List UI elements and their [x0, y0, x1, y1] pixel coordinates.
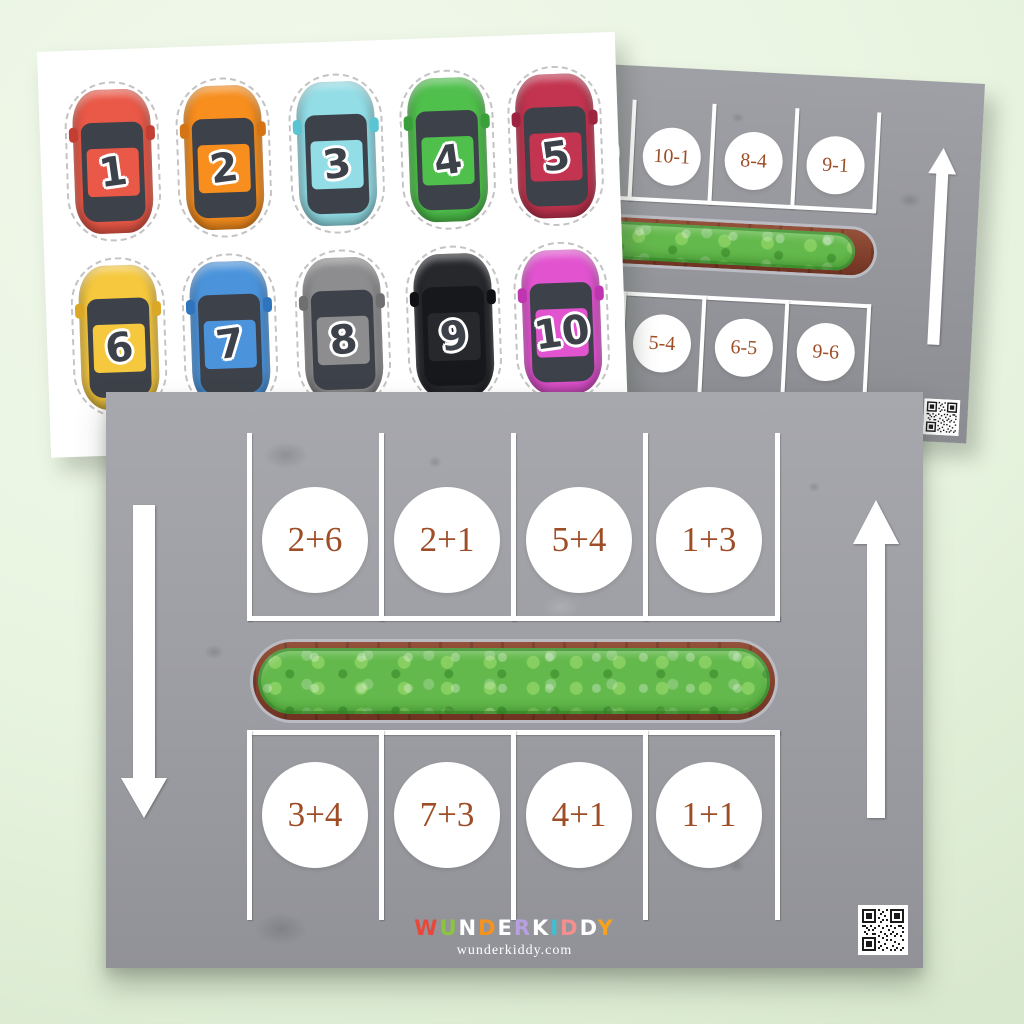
car-roof: 9 — [428, 312, 481, 361]
car-mirror — [263, 297, 273, 312]
spot-text: 4+1 — [552, 795, 607, 835]
logo-letter: W — [414, 916, 439, 940]
parking-spot-label: 9-1 — [805, 135, 866, 196]
car-top-view: 2 — [182, 84, 265, 231]
car-card-8: 8 — [293, 248, 393, 411]
parking-line — [707, 104, 716, 205]
logo-letter: D — [560, 916, 579, 940]
parking-line — [775, 433, 780, 621]
car-mirror — [595, 286, 605, 301]
parking-line — [780, 300, 789, 404]
logo-letter: D — [478, 916, 497, 940]
car-top-view: 6 — [78, 264, 161, 411]
car-number: 6 — [102, 323, 136, 372]
parking-spot-label: 8-4 — [723, 131, 784, 192]
car-mirror — [511, 113, 521, 128]
car-number: 9 — [437, 312, 471, 361]
logo-letter: R — [514, 916, 532, 940]
car-roof: 10 — [536, 308, 589, 357]
parking-line — [775, 730, 780, 920]
parking-line — [790, 108, 799, 209]
spot-text: 9-1 — [822, 153, 850, 177]
asphalt-stain — [894, 189, 925, 211]
car-mirror — [588, 110, 598, 125]
parking-spot-label: 2+1 — [394, 487, 500, 593]
car-card-4: 4 — [398, 68, 498, 231]
car-mirror — [410, 292, 420, 307]
parking-spot-label: 1+1 — [656, 762, 762, 868]
parking-line — [643, 730, 648, 920]
parking-line — [379, 433, 384, 621]
car-number: 1 — [96, 147, 130, 196]
parking-line — [379, 730, 384, 920]
car-roof: 4 — [421, 136, 474, 185]
hedge-bush — [258, 648, 770, 714]
arrow-head — [121, 778, 167, 818]
asphalt-stain — [256, 437, 316, 473]
arrow-head — [853, 500, 899, 544]
car-mirror — [370, 118, 380, 133]
asphalt-stain — [426, 454, 444, 470]
car-top-view: 9 — [412, 252, 495, 399]
car-top-view: 10 — [520, 249, 603, 396]
car-number: 10 — [531, 306, 593, 359]
car-mirror — [180, 124, 190, 139]
car-card-9: 9 — [404, 244, 504, 407]
car-mirror — [403, 116, 413, 131]
car-roof: 5 — [529, 132, 582, 181]
car-card-3: 3 — [287, 72, 387, 235]
hedge-divider — [250, 639, 778, 723]
parking-line — [247, 616, 780, 621]
parking-line — [247, 433, 252, 621]
spot-text: 8-4 — [740, 149, 768, 173]
parking-line — [872, 112, 881, 213]
car-roof: 3 — [311, 140, 364, 189]
spot-text: 1+1 — [682, 795, 737, 835]
car-number: 8 — [326, 316, 360, 365]
parking-line — [511, 730, 516, 920]
spot-text: 1+3 — [682, 520, 737, 560]
spot-text: 5+4 — [552, 520, 607, 560]
logo-letter: Y — [598, 916, 615, 940]
worksheet-mockup: 10-1 8-4 9-1 5-4 6-5 9-6 — [0, 0, 1024, 1024]
car-card-7: 7 — [180, 252, 280, 415]
car-mirror — [152, 301, 162, 316]
down-arrow-icon — [121, 505, 167, 819]
parking-line — [247, 730, 252, 920]
arrow-shaft — [927, 173, 948, 345]
car-mirror — [257, 122, 267, 137]
car-mirror — [69, 128, 79, 143]
spot-text: 5-4 — [648, 331, 676, 355]
car-card-10: 10 — [512, 240, 612, 403]
car-roof: 2 — [198, 144, 251, 193]
asphalt-stain — [806, 480, 822, 494]
car-number: 5 — [539, 132, 573, 181]
logo-wordmark: WUNDERKIDDY — [106, 918, 923, 939]
parking-line — [643, 433, 648, 621]
spot-text: 2+6 — [288, 520, 343, 560]
car-top-view: 5 — [514, 73, 597, 220]
car-mirror — [293, 120, 303, 135]
car-roof: 8 — [317, 316, 370, 365]
qr-code — [923, 398, 961, 436]
parking-spot-label: 5-4 — [632, 313, 693, 374]
addition-parking-sheet: 2+6 2+1 5+4 1+3 3+4 7+3 4+1 1+1 WUNDERKI… — [106, 392, 923, 968]
car-top-view: 8 — [301, 256, 384, 403]
car-mirror — [480, 114, 490, 129]
parking-line — [697, 296, 706, 400]
car-number: 7 — [213, 320, 247, 369]
car-top-view: 1 — [71, 88, 154, 235]
parking-line — [627, 100, 636, 201]
logo-website: wunderkiddy.com — [106, 944, 923, 958]
parking-spot-label: 6-5 — [713, 317, 774, 378]
car-number: 4 — [431, 136, 465, 185]
car-mirror — [146, 125, 156, 140]
wunderkiddy-logo: WUNDERKIDDY wunderkiddy.com — [106, 918, 923, 958]
arrow-shaft — [867, 543, 885, 818]
parking-spot-label: 5+4 — [526, 487, 632, 593]
spot-text: 9-6 — [812, 340, 840, 364]
parking-spot-label: 9-6 — [795, 322, 856, 383]
qr-code — [858, 905, 908, 955]
car-card-1: 1 — [63, 80, 163, 243]
car-top-view: 3 — [295, 80, 378, 227]
car-roof: 7 — [204, 320, 257, 369]
spot-text: 10-1 — [653, 144, 691, 169]
parking-spot-label: 7+3 — [394, 762, 500, 868]
parking-line — [511, 433, 516, 621]
car-number: 3 — [320, 140, 354, 189]
logo-letter: U — [439, 916, 458, 940]
asphalt-stain — [201, 642, 227, 662]
up-arrow-icon — [919, 147, 957, 346]
spot-text: 2+1 — [420, 520, 475, 560]
logo-letter: N — [459, 916, 479, 940]
logo-letter: K — [532, 916, 550, 940]
parking-spot-label: 2+6 — [262, 487, 368, 593]
asphalt-stain — [729, 111, 748, 125]
car-mirror — [518, 288, 528, 303]
up-arrow-icon — [853, 500, 899, 818]
parking-spot-label: 4+1 — [526, 762, 632, 868]
car-roof: 1 — [87, 148, 140, 197]
car-card-2: 2 — [174, 76, 274, 239]
logo-letter: D — [580, 916, 598, 940]
car-number: 2 — [207, 144, 241, 193]
car-mirror — [75, 304, 85, 319]
car-card-5: 5 — [506, 64, 606, 227]
logo-letter: E — [498, 916, 514, 940]
parking-spot-label: 10-1 — [641, 126, 702, 187]
parking-spot-label: 1+3 — [656, 487, 762, 593]
car-mirror — [376, 293, 386, 308]
spot-text: 3+4 — [288, 795, 343, 835]
arrow-shaft — [133, 505, 155, 779]
car-mirror — [299, 296, 309, 311]
arrow-head — [928, 147, 957, 174]
car-top-view: 7 — [188, 260, 271, 407]
car-roof: 6 — [93, 323, 146, 372]
spot-text: 6-5 — [730, 336, 758, 360]
spot-text: 7+3 — [420, 795, 475, 835]
car-mirror — [186, 300, 196, 315]
parking-spot-label: 3+4 — [262, 762, 368, 868]
car-mirror — [487, 290, 497, 305]
logo-letter: I — [550, 916, 560, 940]
car-top-view: 4 — [406, 76, 489, 223]
